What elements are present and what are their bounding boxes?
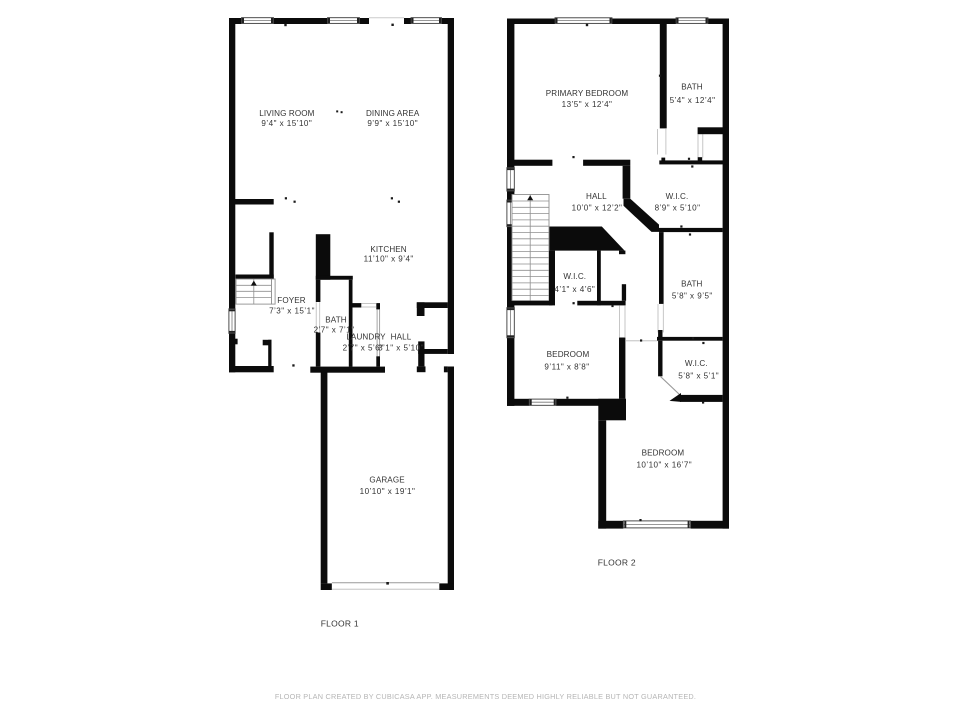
svg-text:GARAGE: GARAGE [369,476,405,485]
svg-text:3’1" x 5’10": 3’1" x 5’10" [378,343,424,352]
svg-text:KITCHEN: KITCHEN [370,245,406,254]
svg-text:FLOOR PLAN CREATED BY CUBICASA: FLOOR PLAN CREATED BY CUBICASA APP. MEAS… [275,692,696,701]
svg-text:10’0" x 12’2": 10’0" x 12’2" [572,204,623,213]
svg-text:DINING AREA: DINING AREA [366,109,420,118]
svg-text:PRIMARY BEDROOM: PRIMARY BEDROOM [546,89,629,98]
svg-text:11’10" x 9’4": 11’10" x 9’4" [364,255,414,264]
svg-text:13’5" x 12’4": 13’5" x 12’4" [562,100,613,109]
svg-text:10’10" x 16’7": 10’10" x 16’7" [636,461,692,470]
svg-text:7’3" x 15’1": 7’3" x 15’1" [269,306,315,315]
svg-text:FLOOR 1: FLOOR 1 [321,619,359,629]
svg-text:BATH: BATH [681,83,702,92]
svg-text:BEDROOM: BEDROOM [547,350,590,359]
svg-text:10’10" x 19’1": 10’10" x 19’1" [360,487,416,496]
svg-text:5’8" x 5’1": 5’8" x 5’1" [678,372,719,381]
svg-text:HALL: HALL [586,192,607,201]
svg-text:5’4" x 12’4": 5’4" x 12’4" [670,96,716,105]
svg-text:FLOOR 2: FLOOR 2 [598,558,636,568]
svg-text:BEDROOM: BEDROOM [642,449,685,458]
svg-text:W.I.C.: W.I.C. [563,272,586,281]
svg-text:BATH: BATH [681,279,702,288]
svg-text:LAUNDRY: LAUNDRY [346,332,386,341]
svg-text:9’9" x 15’10": 9’9" x 15’10" [367,119,418,128]
svg-text:8’9" x 5’10": 8’9" x 5’10" [655,204,701,213]
svg-text:W.I.C.: W.I.C. [666,192,689,201]
svg-text:BATH: BATH [325,315,346,324]
svg-text:W.I.C.: W.I.C. [685,359,708,368]
svg-text:9’11" x 8’8": 9’11" x 8’8" [544,362,589,371]
svg-text:4’1" x 4’6": 4’1" x 4’6" [554,285,595,294]
svg-text:LIVING ROOM: LIVING ROOM [259,109,314,118]
svg-text:5’8" x 9’5": 5’8" x 9’5" [672,292,713,301]
svg-text:9’4" x 15’10": 9’4" x 15’10" [261,119,312,128]
svg-text:FOYER: FOYER [277,296,306,305]
svg-text:HALL: HALL [391,332,412,341]
